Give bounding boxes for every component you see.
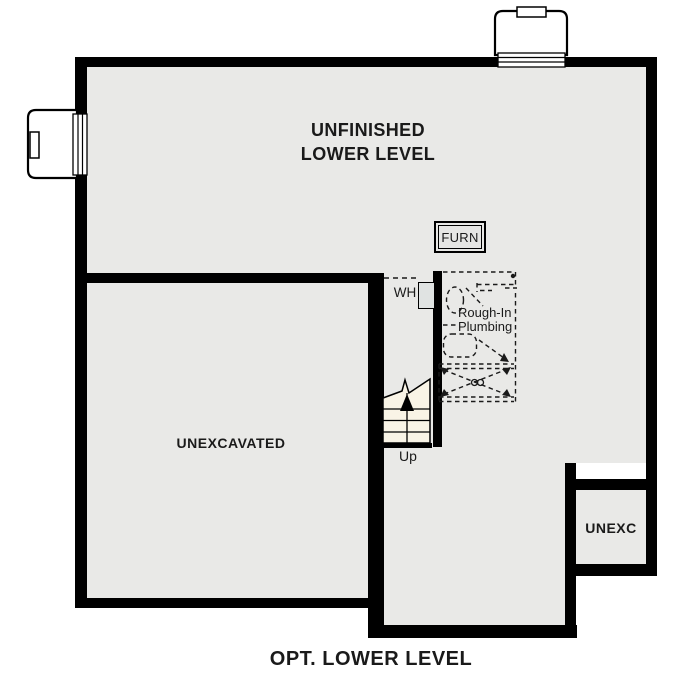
window-well-top-icon bbox=[495, 7, 567, 67]
floor-hallway-lower bbox=[384, 463, 565, 625]
wall-stair-west bbox=[368, 273, 384, 638]
wall-unexcavated-bottom bbox=[75, 598, 375, 608]
floor-plan: FURN UNFINISHED LOWER LEVEL UNEXCAVATED … bbox=[0, 0, 687, 687]
main-room-title-line1: UNFINISHED bbox=[301, 118, 435, 142]
wall-left-upper bbox=[75, 57, 87, 114]
rough-in-label-line2: Plumbing bbox=[458, 320, 512, 334]
wall-unexc-bottom bbox=[565, 564, 657, 576]
water-heater-box bbox=[418, 282, 435, 309]
main-room-title: UNFINISHED LOWER LEVEL bbox=[301, 118, 435, 166]
window-well-left-icon bbox=[28, 110, 87, 178]
stairs-up-label: Up bbox=[399, 448, 417, 464]
wall-right bbox=[646, 57, 657, 576]
water-heater-label: WH bbox=[394, 285, 417, 300]
wall-top-right bbox=[565, 57, 657, 67]
wall-unexc-top bbox=[565, 479, 657, 490]
main-room-title-line2: LOWER LEVEL bbox=[301, 142, 435, 166]
furnace-label: FURN bbox=[438, 225, 482, 249]
rough-in-label-line1: Rough-In bbox=[458, 306, 512, 320]
furnace-box: FURN bbox=[434, 221, 486, 253]
wall-divider-horizontal bbox=[75, 273, 384, 283]
wall-main-bottom bbox=[368, 625, 577, 638]
floor-main-room bbox=[87, 67, 646, 273]
wall-left-lower bbox=[75, 175, 87, 608]
plan-caption: OPT. LOWER LEVEL bbox=[270, 648, 472, 671]
unexc-small-label: UNEXC bbox=[585, 520, 637, 536]
rough-in-plumbing-label: Rough-In Plumbing bbox=[458, 306, 512, 333]
wall-top-left bbox=[75, 57, 498, 67]
unexcavated-label: UNEXCAVATED bbox=[177, 435, 286, 451]
